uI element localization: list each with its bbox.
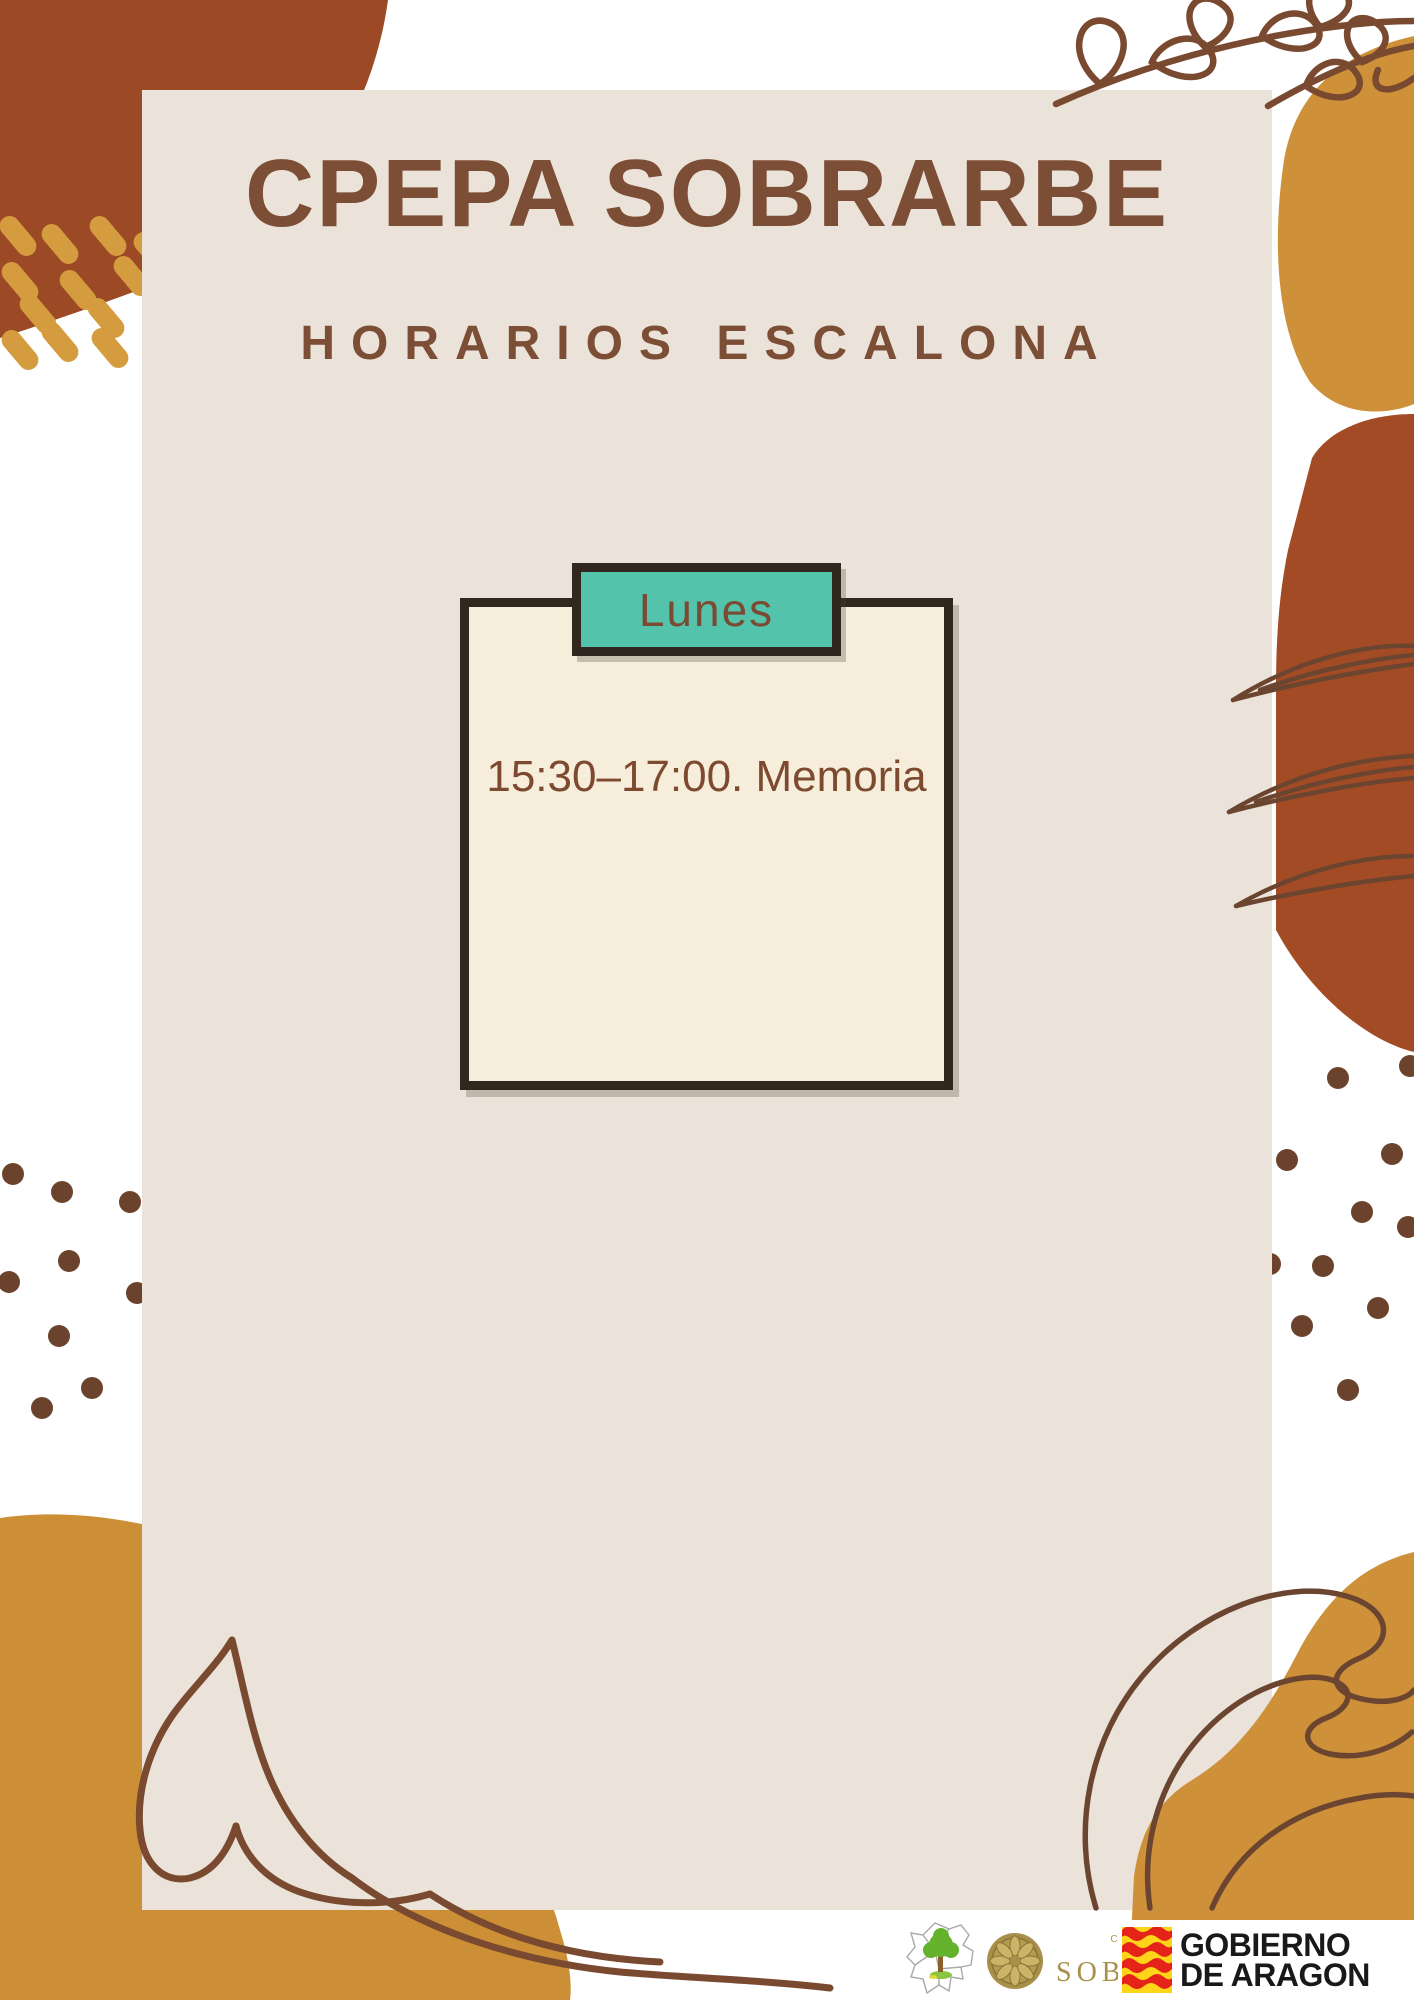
poster-page: CPEPA SOBRARBE HORARIOS ESCALONA Lunes 1… xyxy=(0,0,1414,2000)
gobierno-wordmark: GOBIERNO DE ARAGON xyxy=(1180,1930,1370,1991)
sobrarbe-name-label: SOBRARBE xyxy=(1056,1959,1244,1987)
gobierno-aragon-logo: GOBIERNO DE ARAGON xyxy=(1118,1920,1414,2000)
schedule-card-tab: Lunes xyxy=(572,563,841,656)
sobrarbe-de-label: DE xyxy=(1142,1947,1157,1955)
sobrarbe-comarca-label: COMARCA xyxy=(1110,1935,1189,1945)
schedule-line: 15:30–17:00. Memoria xyxy=(460,752,953,802)
gold-blob-top-right xyxy=(1278,36,1414,412)
dots-left xyxy=(0,1163,148,1419)
aragon-flag-icon xyxy=(1122,1927,1172,1993)
page-subtitle: HORARIOS ESCALONA xyxy=(142,320,1272,368)
sobrarbe-map-logo-icon xyxy=(903,1920,979,2000)
gobierno-line2: DE ARAGON xyxy=(1180,1960,1370,1990)
tree-icon xyxy=(923,1928,959,1979)
schedule-card xyxy=(460,598,953,1090)
rust-blob-right xyxy=(1276,414,1414,1052)
dots-right xyxy=(1259,1055,1414,1401)
page-title: CPEPA SOBRARBE xyxy=(142,146,1272,242)
sobrarbe-medallion-icon xyxy=(986,1932,1044,1990)
sobrarbe-logo: COMARCA DE SOBRARBE xyxy=(986,1932,1244,1990)
sobrarbe-wordmark: COMARCA DE SOBRARBE xyxy=(1056,1935,1244,1987)
tab-label: Lunes xyxy=(639,583,774,637)
gobierno-line1: GOBIERNO xyxy=(1180,1930,1370,1960)
